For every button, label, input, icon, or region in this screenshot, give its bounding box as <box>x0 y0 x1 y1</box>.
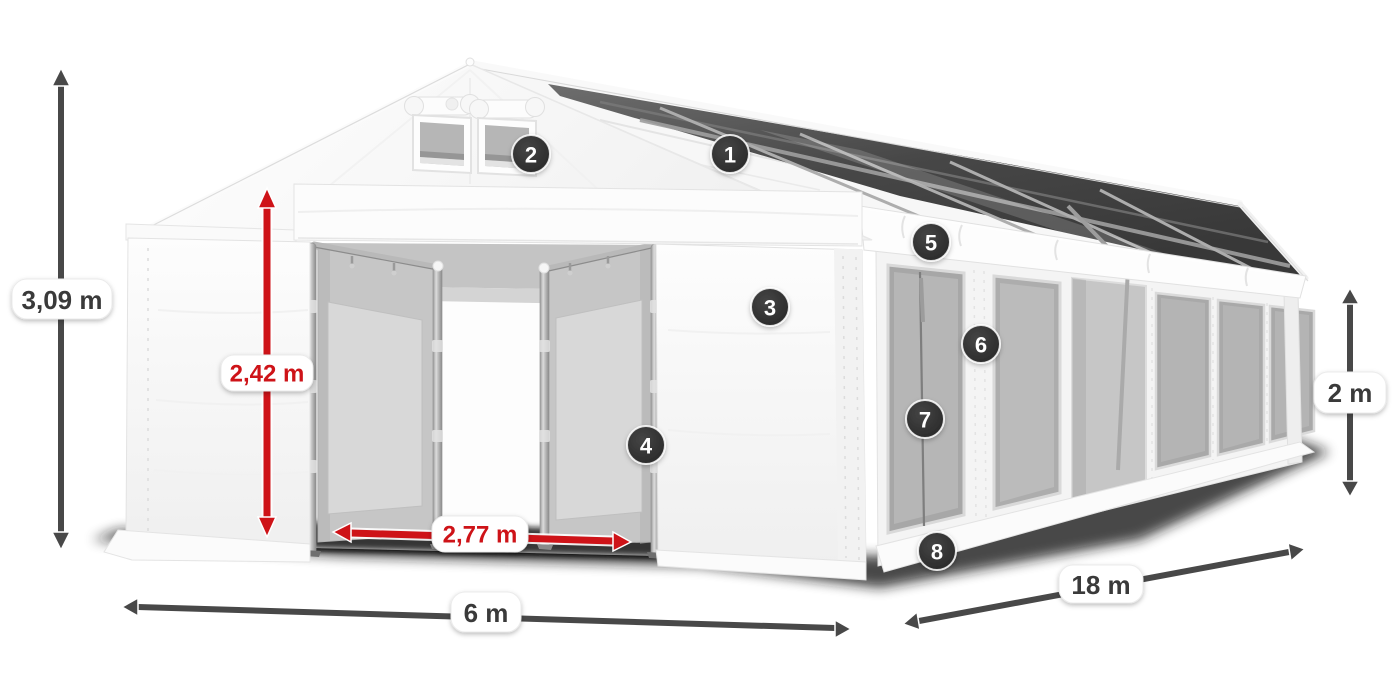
callout-badge-4[interactable]: 4 <box>627 426 665 464</box>
callout-badge-2[interactable]: 2 <box>512 135 550 173</box>
door-panel-left <box>318 248 434 542</box>
arrowhead-down <box>1341 481 1359 497</box>
dimension-side-wall-height: 2 m <box>1314 288 1386 497</box>
callout-badge-8[interactable]: 8 <box>918 532 956 570</box>
badge-number: 8 <box>931 540 943 565</box>
front-opening <box>303 243 665 559</box>
side-window-panel <box>1218 300 1264 455</box>
badge-number: 3 <box>764 296 776 321</box>
arrowhead-down <box>52 532 70 550</box>
dimension-front-width: 6 m <box>122 592 851 638</box>
arrowhead-left <box>122 598 138 616</box>
callout-badge-1[interactable]: 1 <box>711 135 749 173</box>
tent-dimension-diagram: 3,09 m 2,42 m 2,77 m 6 m 18 m <box>0 0 1400 700</box>
arrowhead-right <box>1288 543 1305 561</box>
badge-number: 1 <box>724 143 736 168</box>
front-band <box>294 184 862 246</box>
front-width-label: 6 m <box>464 598 509 628</box>
callout-badge-7[interactable]: 7 <box>906 400 944 438</box>
dimension-total-height: 3,09 m <box>12 68 112 550</box>
badge-number: 4 <box>640 434 653 459</box>
door-width-label: 2,77 m <box>443 522 518 549</box>
side-window-panel <box>994 276 1060 509</box>
badge-number: 2 <box>525 143 537 168</box>
door-window <box>556 300 642 520</box>
front-left-wall <box>104 238 310 562</box>
badge-number: 5 <box>925 231 937 256</box>
total-height-label: 3,09 m <box>22 285 103 315</box>
door-height-label: 2,42 m <box>230 361 305 388</box>
arrowhead-left <box>903 612 920 630</box>
callout-badge-5[interactable]: 5 <box>912 223 950 261</box>
side-open-bay <box>1072 268 1146 505</box>
door-window <box>328 302 422 514</box>
door-panel-right <box>546 248 652 544</box>
callout-badge-6[interactable]: 6 <box>962 325 1000 363</box>
tent-illustration: 3,09 m 2,42 m 2,77 m 6 m 18 m <box>0 0 1400 700</box>
badge-number: 7 <box>919 408 931 433</box>
gable-vent <box>405 95 480 174</box>
arrowhead-up <box>1341 288 1359 304</box>
arrowhead-right <box>835 620 851 638</box>
badge-number: 6 <box>975 333 987 358</box>
callout-badge-3[interactable]: 3 <box>751 288 789 326</box>
front-right-corner <box>834 248 866 566</box>
side-window-panel <box>888 265 964 533</box>
arrowhead-up <box>52 68 70 86</box>
side-window-panel <box>1156 293 1210 469</box>
side-length-label: 18 m <box>1071 570 1130 600</box>
side-wall-height-label: 2 m <box>1328 378 1373 408</box>
